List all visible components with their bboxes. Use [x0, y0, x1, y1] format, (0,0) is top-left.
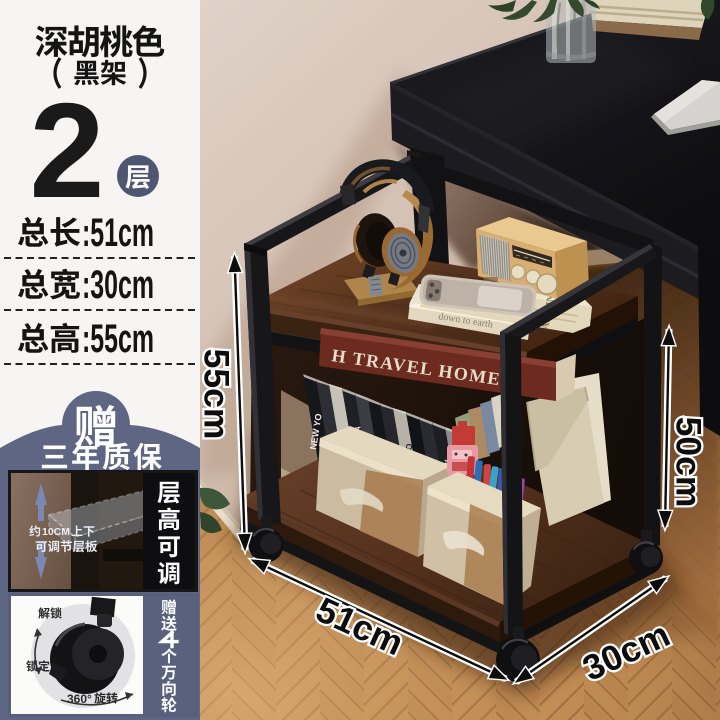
svg-text::55cm: :55cm	[82, 317, 154, 361]
svg-text:50cm: 50cm	[669, 417, 709, 508]
svg-text:55cm: 55cm	[197, 349, 237, 440]
svg-text::51cm: :51cm	[82, 211, 154, 255]
svg-text:360°: 360°	[67, 692, 92, 706]
svg-text:10CM: 10CM	[42, 526, 70, 538]
svg-text:2: 2	[29, 75, 104, 226]
svg-text::30cm: :30cm	[82, 263, 154, 307]
